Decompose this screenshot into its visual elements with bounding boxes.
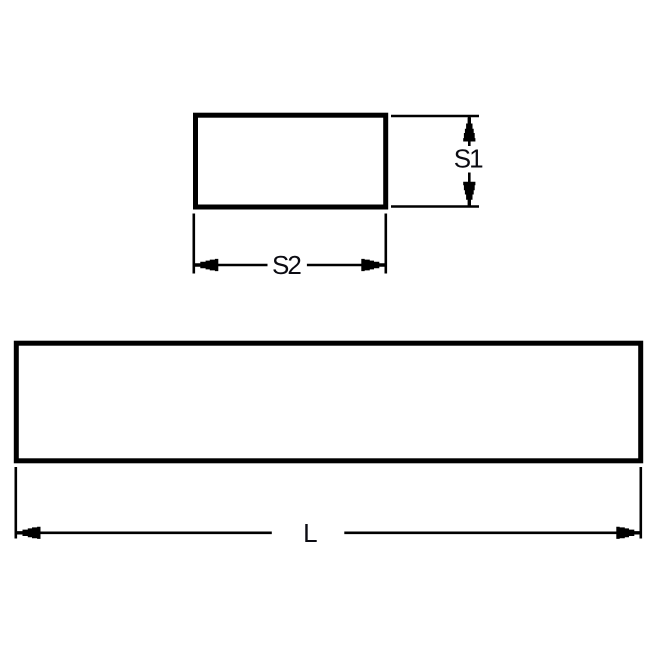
svg-text:S2: S2 xyxy=(272,250,301,280)
svg-text:L: L xyxy=(303,518,317,548)
svg-text:S1: S1 xyxy=(454,144,483,174)
